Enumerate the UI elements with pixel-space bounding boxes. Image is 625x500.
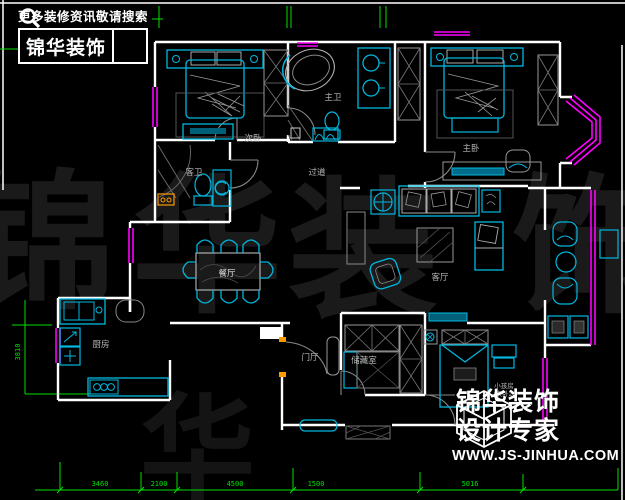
room-label-hallway: 过道 — [308, 167, 326, 177]
room-label-guest-bathroom: 客卫 — [185, 167, 203, 177]
door-swings — [215, 108, 455, 425]
kitchen-fixtures — [60, 299, 168, 396]
room-label-kitchen: 厨房 — [92, 339, 109, 349]
dim-label: 5016 — [462, 480, 479, 488]
cube-logo-icon — [452, 388, 516, 450]
second-bedroom-furniture — [167, 50, 288, 139]
brand-logo-text: 锦华装饰 — [20, 30, 112, 62]
dim-label-left: 3810 — [14, 344, 22, 361]
room-label-second-bedroom: 次卧 — [244, 133, 262, 143]
brand-logo-box: 锦华装饰 — [18, 28, 148, 64]
room-label-storage-room: 储藏室 — [351, 355, 377, 365]
room-label-dining-room: 餐厅 — [218, 268, 236, 278]
bottom-right-branding: 锦华装饰 设计专家 WWW.JS-JINHUA.COM — [452, 388, 625, 464]
floorplan-canvas: 锦 华 装 饰 华 3460 2100 4500 1500 5016 3810 — [0, 0, 625, 500]
room-label-entry-hall: 门厅 — [301, 352, 319, 362]
dim-label: 4500 — [227, 480, 244, 488]
top-left-branding: 更多装修资讯敬请搜索 锦华装饰 — [18, 6, 148, 64]
dim-label: 2100 — [151, 480, 168, 488]
dimension-labels: 3460 2100 4500 1500 5016 3810 — [14, 344, 478, 488]
dim-label: 1500 — [308, 480, 325, 488]
room-label-master-bedroom: 主卧 — [462, 143, 480, 153]
windows — [56, 32, 600, 420]
master-bedroom-furniture — [431, 48, 558, 180]
balcony-fixtures — [548, 222, 618, 338]
search-icon — [112, 30, 146, 62]
room-label-master-bathroom: 主卫 — [324, 92, 342, 102]
entry-door-jambs — [279, 337, 286, 377]
master-bathroom-fixtures — [192, 42, 420, 145]
living-room-furniture — [347, 186, 503, 291]
dim-label: 3460 — [92, 480, 109, 488]
room-label-living-room: 客厅 — [431, 272, 449, 282]
